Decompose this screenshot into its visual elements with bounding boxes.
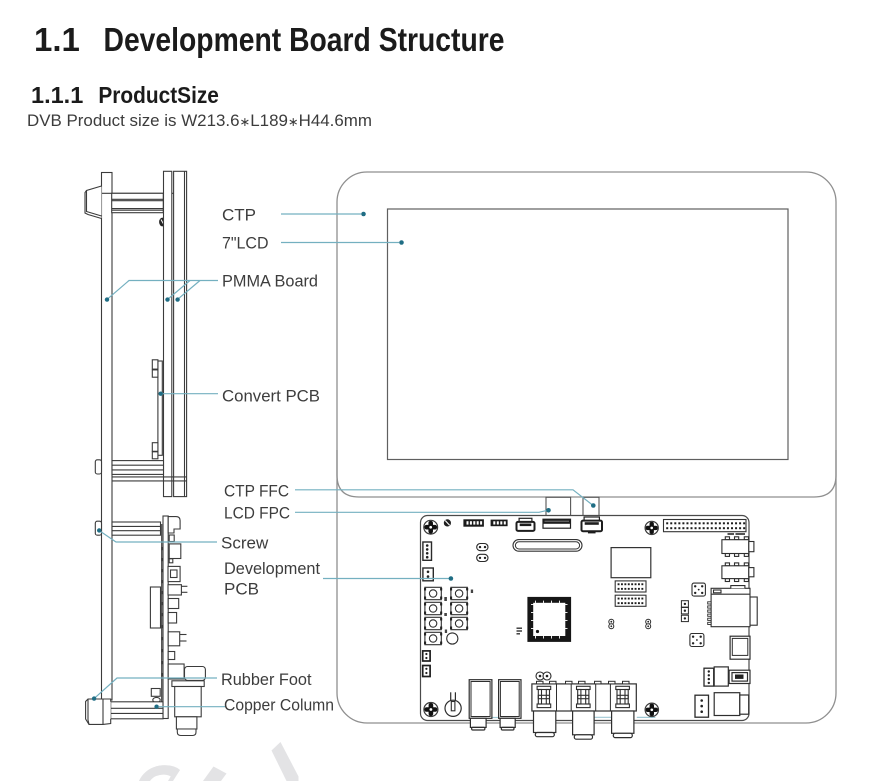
- svg-text:Rubber Foot: Rubber Foot: [221, 670, 312, 689]
- svg-text:ProductSize: ProductSize: [98, 82, 218, 108]
- svg-text:Development: Development: [224, 559, 320, 578]
- svg-text:DVB Product size is W213.6∗L18: DVB Product size is W213.6∗L189∗H44.6mm: [27, 112, 372, 130]
- svg-text:CTP FFC: CTP FFC: [224, 482, 289, 501]
- svg-text:Development Board Structure: Development Board Structure: [104, 21, 505, 58]
- svg-text:Convert PCB: Convert PCB: [222, 387, 320, 406]
- svg-text:CTP: CTP: [222, 206, 256, 225]
- svg-text:LCD FPC: LCD FPC: [224, 504, 290, 523]
- svg-text:Screw: Screw: [221, 534, 269, 553]
- svg-text:PCB: PCB: [224, 580, 259, 599]
- svg-text:Copper Column: Copper Column: [224, 696, 334, 715]
- svg-text:1.1: 1.1: [34, 21, 80, 58]
- svg-text:7"LCD: 7"LCD: [222, 234, 269, 253]
- svg-text:PMMA Board: PMMA Board: [222, 272, 318, 291]
- svg-text:1.1.1: 1.1.1: [31, 82, 83, 108]
